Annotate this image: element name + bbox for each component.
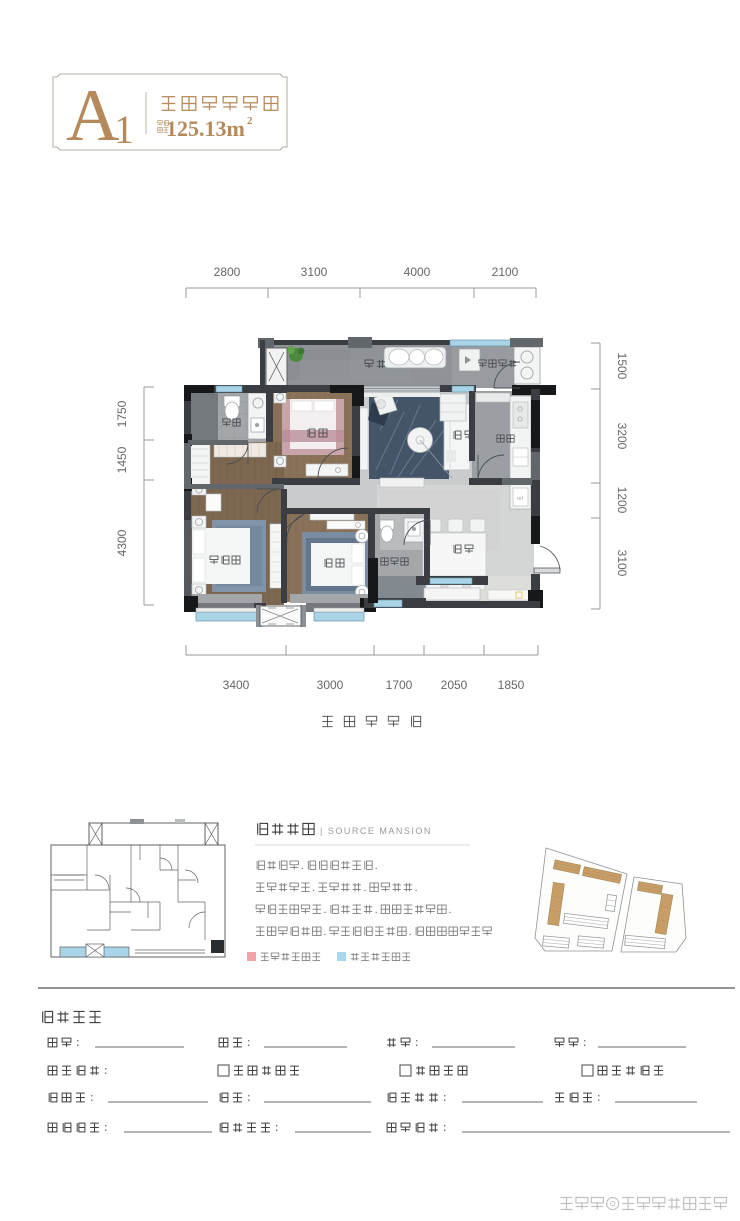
- svg-text:3100: 3100: [301, 265, 328, 279]
- svg-text:1750: 1750: [115, 400, 129, 427]
- svg-text:1: 1: [114, 107, 134, 152]
- svg-text:3100: 3100: [615, 550, 629, 577]
- svg-text:4300: 4300: [115, 529, 129, 556]
- svg-text:4000: 4000: [404, 265, 431, 279]
- svg-text:A: A: [66, 75, 119, 157]
- svg-text:2800: 2800: [214, 265, 241, 279]
- svg-text:1700: 1700: [386, 678, 413, 692]
- svg-text:1850: 1850: [498, 678, 525, 692]
- svg-text:1200: 1200: [615, 487, 629, 514]
- svg-text:ref: ref: [517, 496, 523, 502]
- svg-text:2050: 2050: [441, 678, 468, 692]
- svg-text:1450: 1450: [115, 446, 129, 473]
- svg-text:3000: 3000: [317, 678, 344, 692]
- svg-text:2: 2: [247, 115, 253, 127]
- svg-text:1500: 1500: [615, 353, 629, 380]
- svg-text:2100: 2100: [492, 265, 519, 279]
- svg-text:| SOURCE MANSION: | SOURCE MANSION: [320, 826, 432, 836]
- svg-text:125.13m: 125.13m: [166, 116, 245, 141]
- svg-text:3400: 3400: [223, 678, 250, 692]
- svg-text:3200: 3200: [615, 423, 629, 450]
